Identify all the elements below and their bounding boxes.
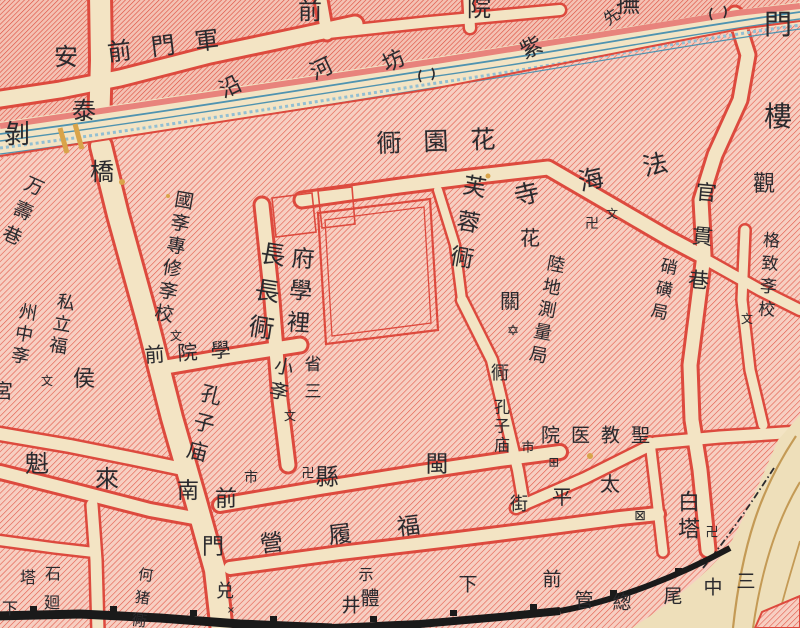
star-mark: ✡ <box>507 324 520 339</box>
street-name-label: 管 <box>574 592 593 611</box>
school-name-label: 國斈專修斈校 <box>151 188 194 327</box>
street-name-label: 緫 <box>612 594 631 613</box>
place-name-label: 示 <box>358 568 373 583</box>
school-mark: 文 <box>606 208 618 220</box>
street-name-label: 樓 <box>764 103 792 131</box>
school-mark: 文 <box>284 410 296 422</box>
street-name-label: 府學裡 <box>282 245 312 342</box>
place-name-label: 關 <box>500 291 520 311</box>
street-name-label: 南 <box>177 481 199 503</box>
street-name-label: 何猪衕 <box>129 566 153 628</box>
map-labels: 前門軍安泰橋前院撫先沿河坊紫門樓衕園花芙蓉衕寺海法卍文官貫巷硝磺局格致斈校文觀花… <box>0 0 800 628</box>
place-name-label: 體 <box>360 590 379 609</box>
street-name-label: 尾 <box>663 588 682 607</box>
temple-mark: 卍 <box>301 468 314 481</box>
place-name-label: 兑 <box>216 583 234 601</box>
place-name-label: 井 <box>341 597 360 616</box>
place-name-label: 花 <box>520 228 540 248</box>
temple-mark: 卍 <box>705 527 718 540</box>
street-name-label: 橋 <box>90 160 114 184</box>
street-name-label: 衕園花 <box>376 126 518 156</box>
street-name-label: 中 <box>703 579 722 598</box>
district-name-label: 侯 <box>73 369 95 391</box>
place-name-label: 廻 <box>44 595 60 611</box>
market-mark: 市 <box>521 442 534 455</box>
street-name-label: 安 <box>54 45 78 69</box>
bureau-name-label: 硝磺局 <box>646 255 677 326</box>
school-mark: 文 <box>41 375 53 387</box>
school-mark: 文 <box>170 330 182 342</box>
street-name-label: 下 <box>458 576 477 595</box>
place-name-label: 宮 <box>0 381 13 401</box>
street-name-label: 剝 <box>4 122 30 148</box>
street-name-label: 紫 <box>517 34 546 63</box>
place-name-label: 下 <box>2 601 18 617</box>
hospital-name-label: 院医教聖 <box>541 427 661 446</box>
temple-mark: 卍 <box>585 217 599 231</box>
place-name-label: 塔 <box>20 570 36 586</box>
street-name-label: 長長衕 <box>244 239 286 353</box>
school-name-label: 格致斈校 <box>754 231 777 324</box>
school-name-label: 省三 <box>302 355 319 409</box>
street-name-label: 河 <box>307 55 336 84</box>
street-name-label: 門 <box>764 11 792 39</box>
street-name-label: 前 <box>542 571 561 590</box>
map-canvas: 前門軍安泰橋前院撫先沿河坊紫門樓衕園花芙蓉衕寺海法卍文官貫巷硝磺局格致斈校文觀花… <box>0 0 800 628</box>
church-mark: ⊠ <box>634 509 646 523</box>
street-name-label: 前院學 <box>144 339 244 366</box>
street-name-label: 泰 <box>72 99 96 123</box>
street-name-label: 院 <box>467 0 491 20</box>
hospital-mark: ⊞ <box>549 457 560 470</box>
place-name-label: 石 <box>45 566 61 582</box>
street-name-label: 坊 <box>379 47 408 76</box>
street-name-label: 万壽巷 <box>0 172 45 254</box>
district-name-label: 閩 <box>426 454 449 477</box>
temple-name-label: 孔子庙 <box>181 381 222 470</box>
street-name-label: 前 <box>298 0 322 23</box>
place-name-label: 魁 <box>25 452 49 476</box>
cross-mark: × <box>227 606 235 616</box>
street-name-label: 前門軍 <box>106 25 240 65</box>
market-mark: 市 <box>244 471 258 485</box>
street-name-label: 門 <box>202 537 224 559</box>
place-name-label: 觀 <box>753 174 775 196</box>
school-name-label: 小斈 <box>265 355 294 408</box>
school-mark: 文 <box>741 313 753 325</box>
temple-name-label: 寺海法 <box>512 141 711 210</box>
street-name-label: 三 <box>736 573 755 592</box>
street-name-label: 沿 <box>216 73 245 102</box>
school-name-label: 州中斈 <box>7 301 36 369</box>
street-name-label: 太 <box>600 474 620 494</box>
pagoda-name-label: 白塔 <box>675 490 697 544</box>
school-name-label: 私立福 <box>45 291 74 359</box>
street-name-label: 平 <box>552 487 572 507</box>
street-name-label: 營履福 <box>259 509 467 557</box>
district-name-label: 縣 <box>316 467 339 490</box>
bureau-name-label: 陸地測量局 <box>525 253 565 369</box>
street-name-label: 前 <box>215 489 237 511</box>
street-name-label: 衕 <box>491 365 509 383</box>
street-name-label: 街 <box>510 496 528 514</box>
place-name-label: 來 <box>95 467 119 491</box>
street-name-label: 官貫巷 <box>684 180 716 313</box>
street-name-label: 芙蓉衕 <box>443 172 484 282</box>
temple-name-label: 孔子庙 <box>492 399 508 456</box>
